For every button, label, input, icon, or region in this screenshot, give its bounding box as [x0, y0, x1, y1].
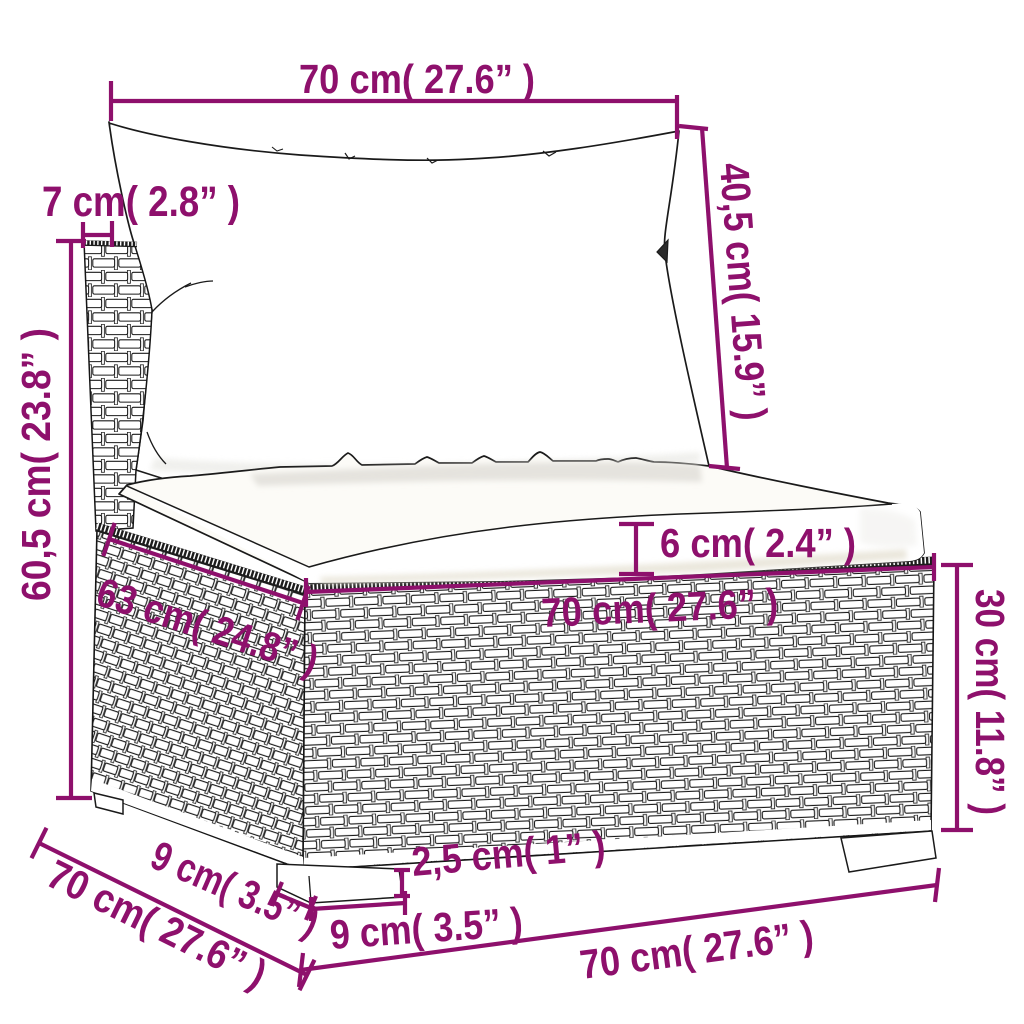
svg-text:60,5 cm( 23.8” ): 60,5 cm( 23.8” ): [13, 328, 59, 601]
svg-text:70 cm( 27.6” ): 70 cm( 27.6” ): [299, 56, 535, 102]
svg-text:6 cm( 2.4” ): 6 cm( 2.4” ): [660, 520, 856, 566]
svg-text:7 cm( 2.8” ): 7 cm( 2.8” ): [42, 178, 240, 226]
svg-text:30 cm( 11.8” ): 30 cm( 11.8” ): [967, 589, 1013, 815]
